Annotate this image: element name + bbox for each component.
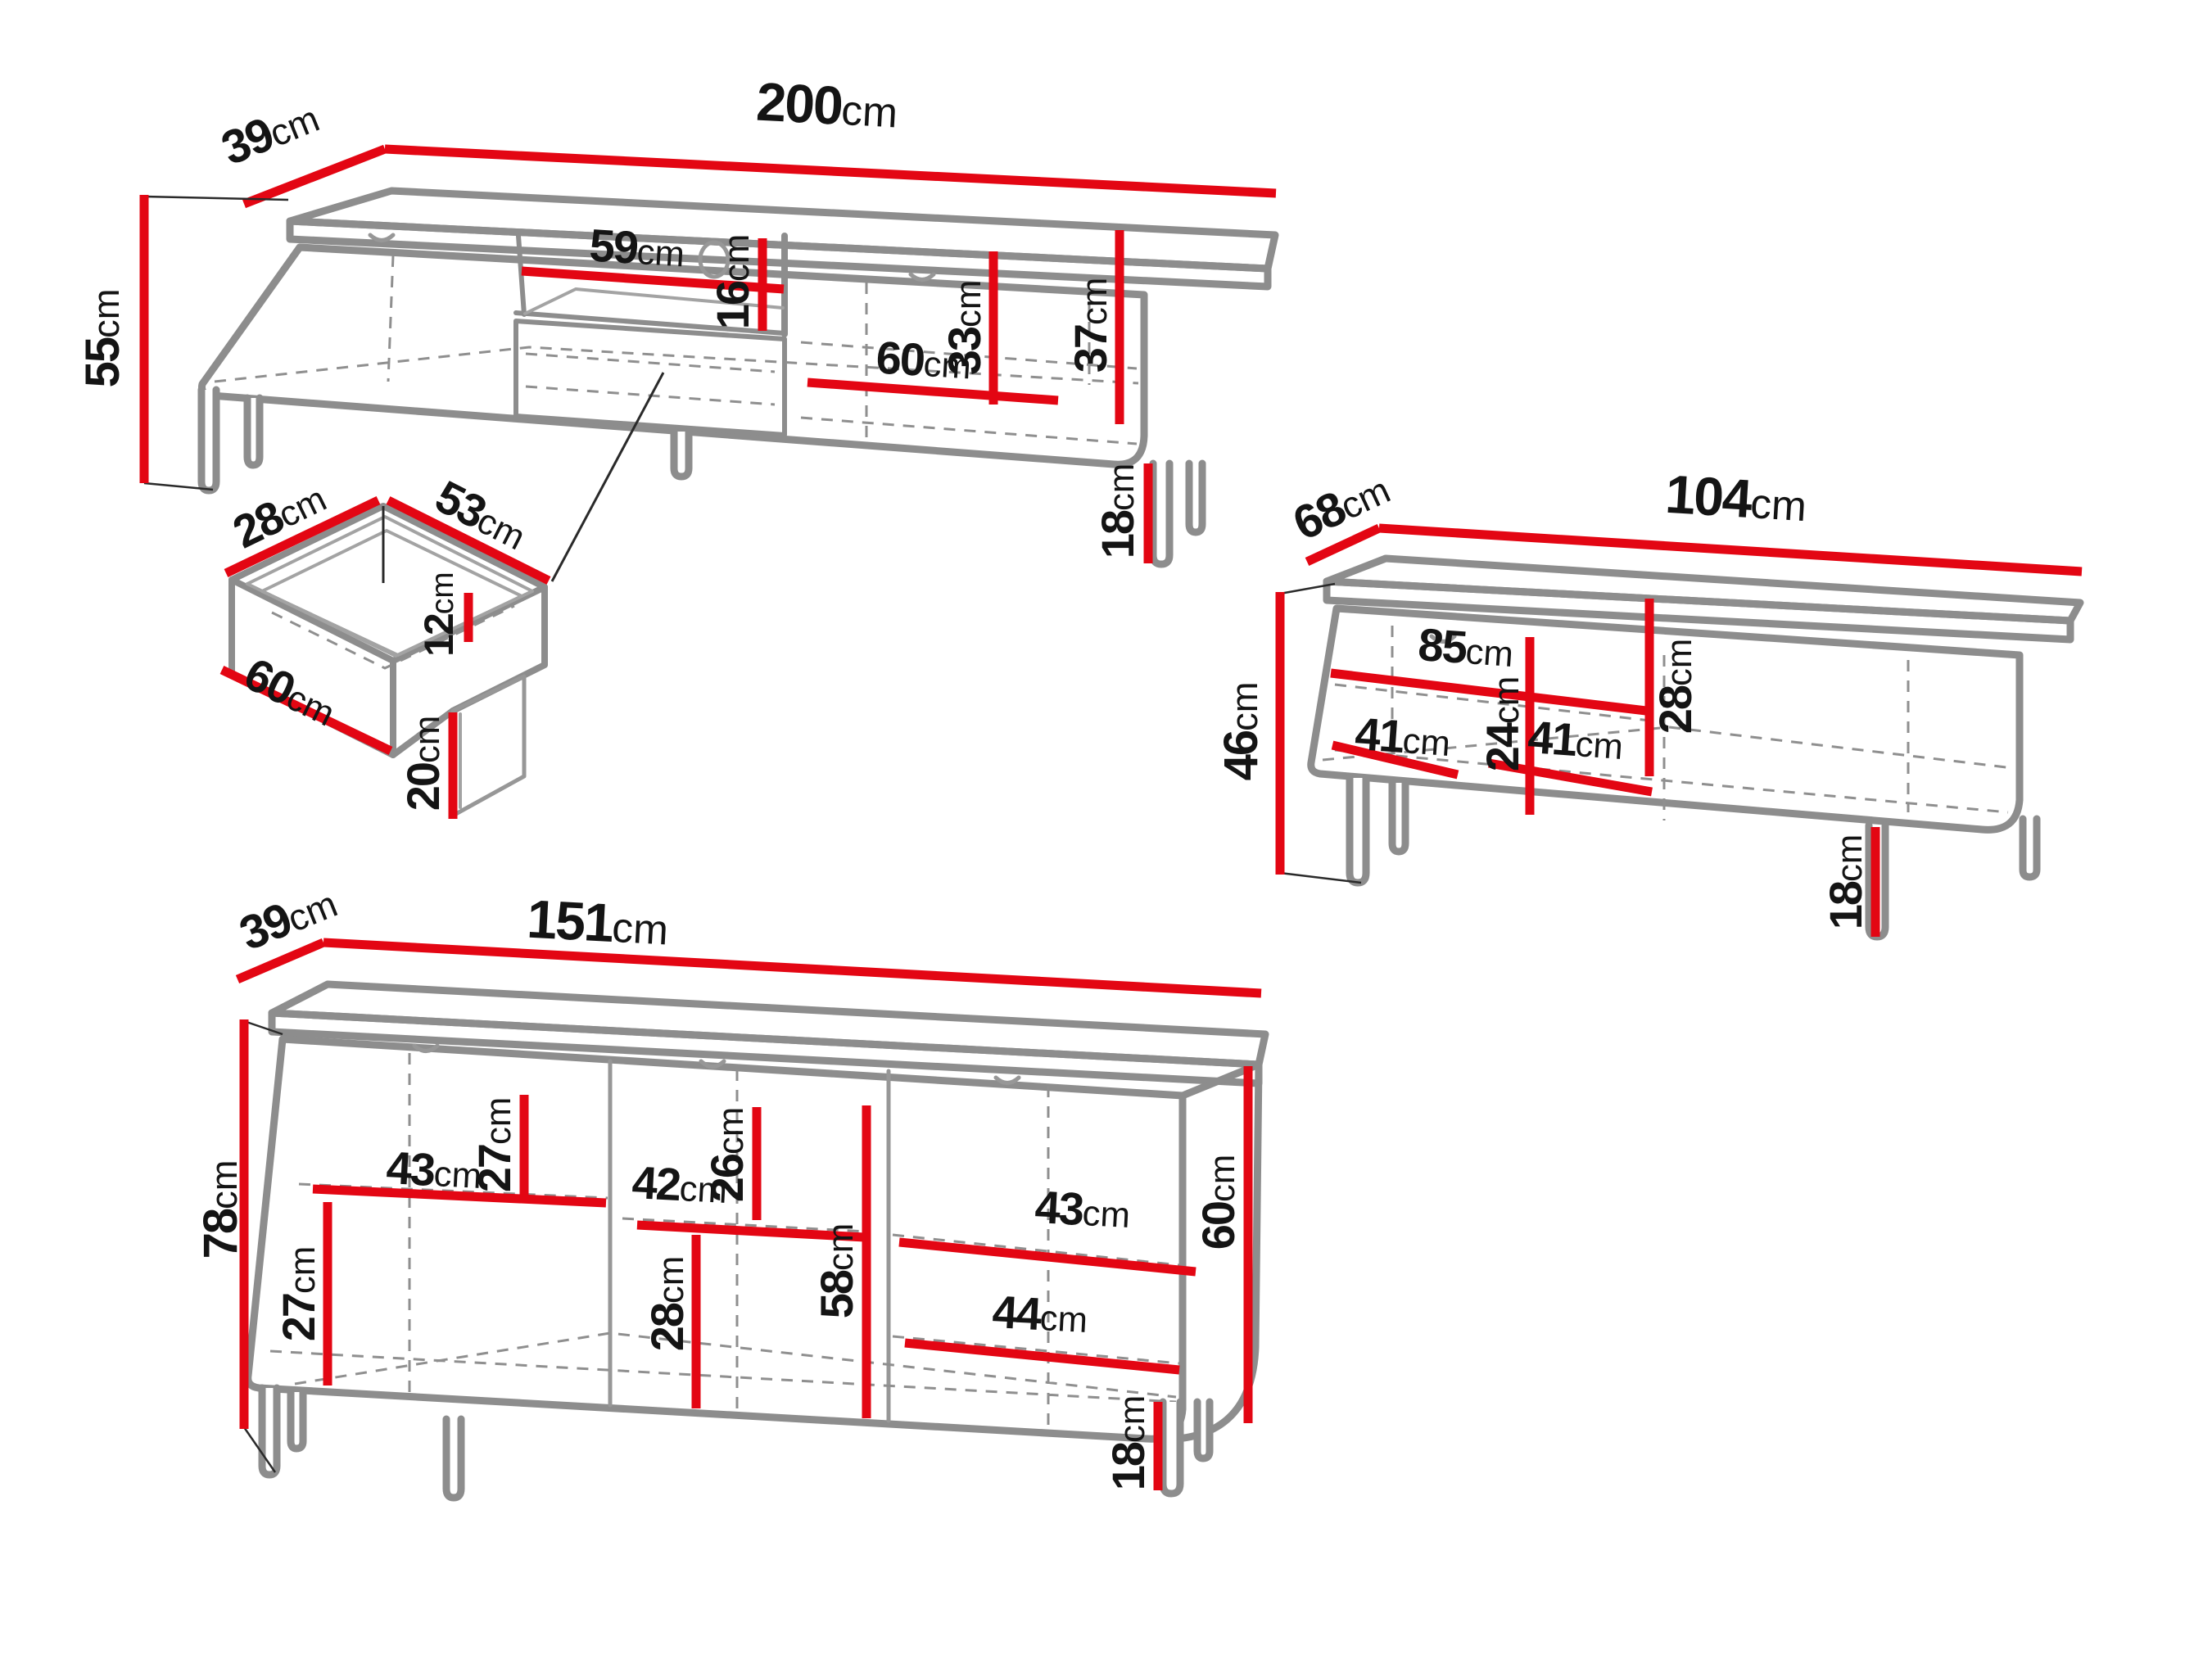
dimension-line-sideboard-43cm (899, 1242, 1196, 1272)
dimension-value: 41 (1354, 707, 1405, 762)
dimension-label-sideboard-58cm: 58cm (814, 1223, 860, 1319)
dimension-unit: cm (1101, 463, 1142, 511)
dimension-unit: cm (821, 1223, 861, 1271)
dimension-label-sideboard-28cm: 28cm (645, 1256, 690, 1352)
dimension-value: 43 (1034, 1181, 1084, 1235)
dimension-value: 27 (273, 1294, 324, 1341)
dimension-unit: cm (679, 1169, 729, 1211)
dimension-value: 37 (1065, 325, 1116, 373)
dimension-value: 43 (385, 1141, 436, 1196)
drawer-top-front-rim (232, 580, 545, 661)
dimension-extension-line-sideboard (244, 1021, 283, 1034)
dimension-unit: cm (433, 1154, 483, 1196)
drawer-inner-rim-front (247, 584, 532, 656)
dimension-unit: cm (85, 289, 127, 338)
dimension-label-drawer-detail-12cm: 12cm (418, 572, 459, 657)
coffee-table-leg (1392, 783, 1405, 852)
sideboard-leg (291, 1392, 303, 1449)
drawer-callout-line (552, 373, 663, 581)
dimension-unit: cm (636, 232, 685, 274)
dimension-label-coffee-table-46cm: 46cm (1218, 682, 1265, 781)
dimension-label-tv-stand-37cm: 37cm (1068, 278, 1114, 373)
tv-stand-leg (247, 398, 260, 465)
dimension-value: 85 (1417, 618, 1468, 673)
dimension-unit: cm (651, 1256, 691, 1304)
dimension-line-sideboard-151cm (323, 943, 1261, 993)
dimension-value: 78 (194, 1209, 247, 1259)
coffee-table-leg (1350, 778, 1366, 883)
sideboard-leg (262, 1388, 277, 1475)
dimension-unit: cm (948, 280, 988, 328)
dimension-value: 58 (811, 1271, 862, 1318)
dimension-label-coffee-table-85cm: 85cm (1417, 622, 1515, 674)
dimension-label-tv-stand-200cm: 200cm (755, 75, 899, 136)
dimension-value: 104 (1664, 463, 1753, 529)
sideboard-leg (1197, 1402, 1210, 1458)
dimension-label-tv-stand-18cm: 18cm (1095, 463, 1141, 559)
coffee-table-leg (2023, 819, 2037, 877)
dimension-label-tv-stand-33cm: 33cm (942, 280, 988, 376)
dimension-label-sideboard-151cm: 151cm (526, 892, 670, 953)
dimension-label-tv-stand-55cm: 55cm (79, 289, 127, 388)
dimension-value: 41 (1527, 711, 1578, 766)
dimension-unit: cm (717, 234, 757, 282)
dimension-label-coffee-table-24cm: 24cm (1480, 676, 1526, 772)
dimension-label-sideboard-43cm: 43cm (1034, 1184, 1131, 1235)
dimension-label-tv-stand-16cm: 16cm (710, 234, 756, 330)
dimension-value: 44 (991, 1286, 1042, 1340)
dimension-unit: cm (1486, 676, 1527, 724)
dimension-label-sideboard-44cm: 44cm (991, 1289, 1088, 1340)
dimension-value: 55 (76, 338, 129, 388)
dimension-unit: cm (1830, 834, 1870, 882)
dimension-value: 24 (1477, 724, 1528, 771)
dimension-unit: cm (1039, 1298, 1089, 1340)
dimension-label-coffee-table-41cm: 41cm (1354, 711, 1452, 763)
tv-stand-leg (1153, 463, 1169, 564)
dimension-value: 42 (631, 1156, 681, 1210)
dimension-unit: cm (1202, 1155, 1242, 1202)
dimension-value: 60 (1192, 1202, 1244, 1250)
dimension-unit: cm (1224, 682, 1265, 731)
dimension-line-sideboard-44cm (905, 1343, 1179, 1370)
dimension-label-coffee-table-18cm: 18cm (1823, 834, 1869, 930)
dimension-value: 59 (588, 219, 639, 273)
dimension-value: 28 (1649, 686, 1701, 734)
dimension-value: 18 (1102, 1443, 1154, 1490)
dimension-value: 18 (1092, 511, 1143, 558)
furniture-dimensions-diagram: 39cm200cm55cm59cm16cm60cm33cm37cm18cm28c… (0, 0, 2212, 1659)
dimension-unit: cm (1574, 724, 1624, 767)
dimension-label-drawer-detail-20cm: 20cm (400, 716, 446, 811)
dimension-value: 12 (416, 614, 462, 657)
drawer-slide-rail (453, 676, 524, 816)
dimension-unit: cm (1659, 639, 1699, 686)
dimension-label-sideboard-27cm: 27cm (276, 1246, 322, 1342)
dimension-unit: cm (478, 1097, 518, 1145)
dimension-unit: cm (283, 1246, 323, 1294)
dimension-value: 46 (1215, 731, 1268, 781)
dimension-unit: cm (1401, 721, 1451, 764)
dimension-unit: cm (711, 1107, 751, 1155)
dimension-label-tv-stand-59cm: 59cm (588, 222, 686, 273)
dimension-unit: cm (1074, 278, 1115, 325)
dimension-unit: cm (425, 572, 460, 614)
dimension-unit: cm (1464, 631, 1514, 675)
dimension-unit: cm (611, 903, 670, 954)
dimension-value: 18 (1820, 882, 1871, 929)
dimension-unit: cm (203, 1160, 245, 1209)
tv-stand-leg (1189, 463, 1202, 532)
dimension-label-coffee-table-41cm: 41cm (1527, 714, 1625, 766)
dimension-unit: cm (1749, 479, 1808, 530)
dimension-value: 33 (939, 328, 990, 375)
dimension-label-coffee-table-28cm: 28cm (1653, 639, 1699, 735)
sideboard-leg (1163, 1402, 1180, 1494)
dimension-value: 28 (641, 1304, 693, 1351)
dimension-label-sideboard-78cm: 78cm (197, 1160, 245, 1259)
dimension-label-sideboard-18cm: 18cm (1106, 1395, 1151, 1491)
tv-stand-leg (201, 390, 216, 490)
dimension-unit: cm (1082, 1193, 1132, 1236)
dimension-label-sideboard-43cm: 43cm (385, 1145, 482, 1196)
sideboard-body (248, 1039, 1183, 1439)
dimension-unit: cm (1112, 1395, 1152, 1443)
dimension-unit: cm (840, 86, 899, 137)
dimension-line-tv-stand-200cm (385, 149, 1276, 193)
tv-stand-drawer-front (516, 321, 785, 435)
tv-stand-leg (674, 432, 689, 477)
dimension-unit: cm (407, 716, 447, 763)
dimension-value: 20 (397, 763, 449, 811)
dimension-label-coffee-table-104cm: 104cm (1664, 467, 1808, 529)
dimension-value: 60 (875, 332, 925, 386)
dimension-label-sideboard-42cm: 42cm (631, 1159, 728, 1210)
dimension-value: 200 (755, 71, 844, 136)
dimension-value: 16 (707, 282, 758, 329)
dimension-line-tv-stand-60cm (807, 382, 1058, 400)
sideboard-leg (446, 1419, 461, 1498)
dimension-label-sideboard-60cm: 60cm (1196, 1155, 1242, 1250)
dimension-value: 151 (526, 888, 614, 953)
